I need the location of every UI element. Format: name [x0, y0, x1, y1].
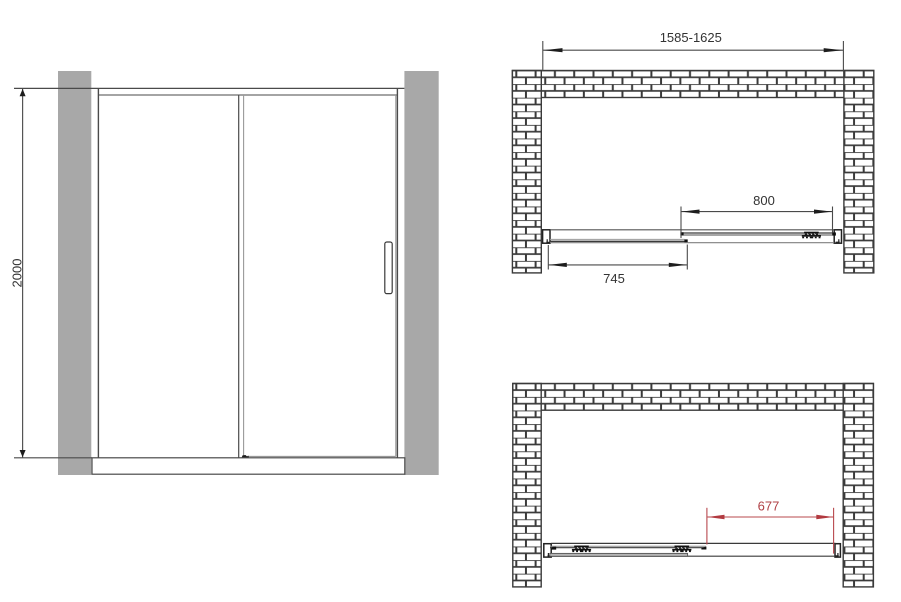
svg-text:677: 677 — [758, 499, 780, 514]
svg-text:2000: 2000 — [9, 259, 24, 288]
svg-text:800: 800 — [753, 193, 775, 208]
svg-text:1585-1625: 1585-1625 — [660, 30, 722, 45]
svg-text:745: 745 — [603, 271, 625, 286]
